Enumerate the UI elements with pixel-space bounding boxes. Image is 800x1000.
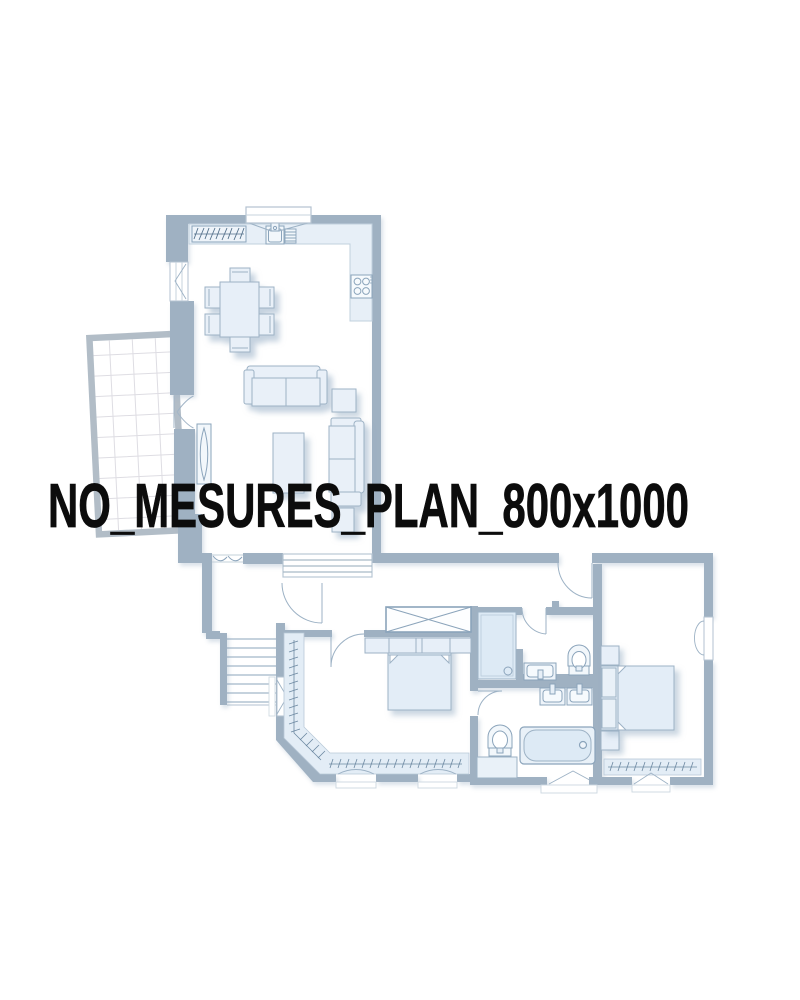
svg-text:NO_MESURES_PLAN_800x1000: NO_MESURES_PLAN_800x1000: [48, 472, 689, 541]
